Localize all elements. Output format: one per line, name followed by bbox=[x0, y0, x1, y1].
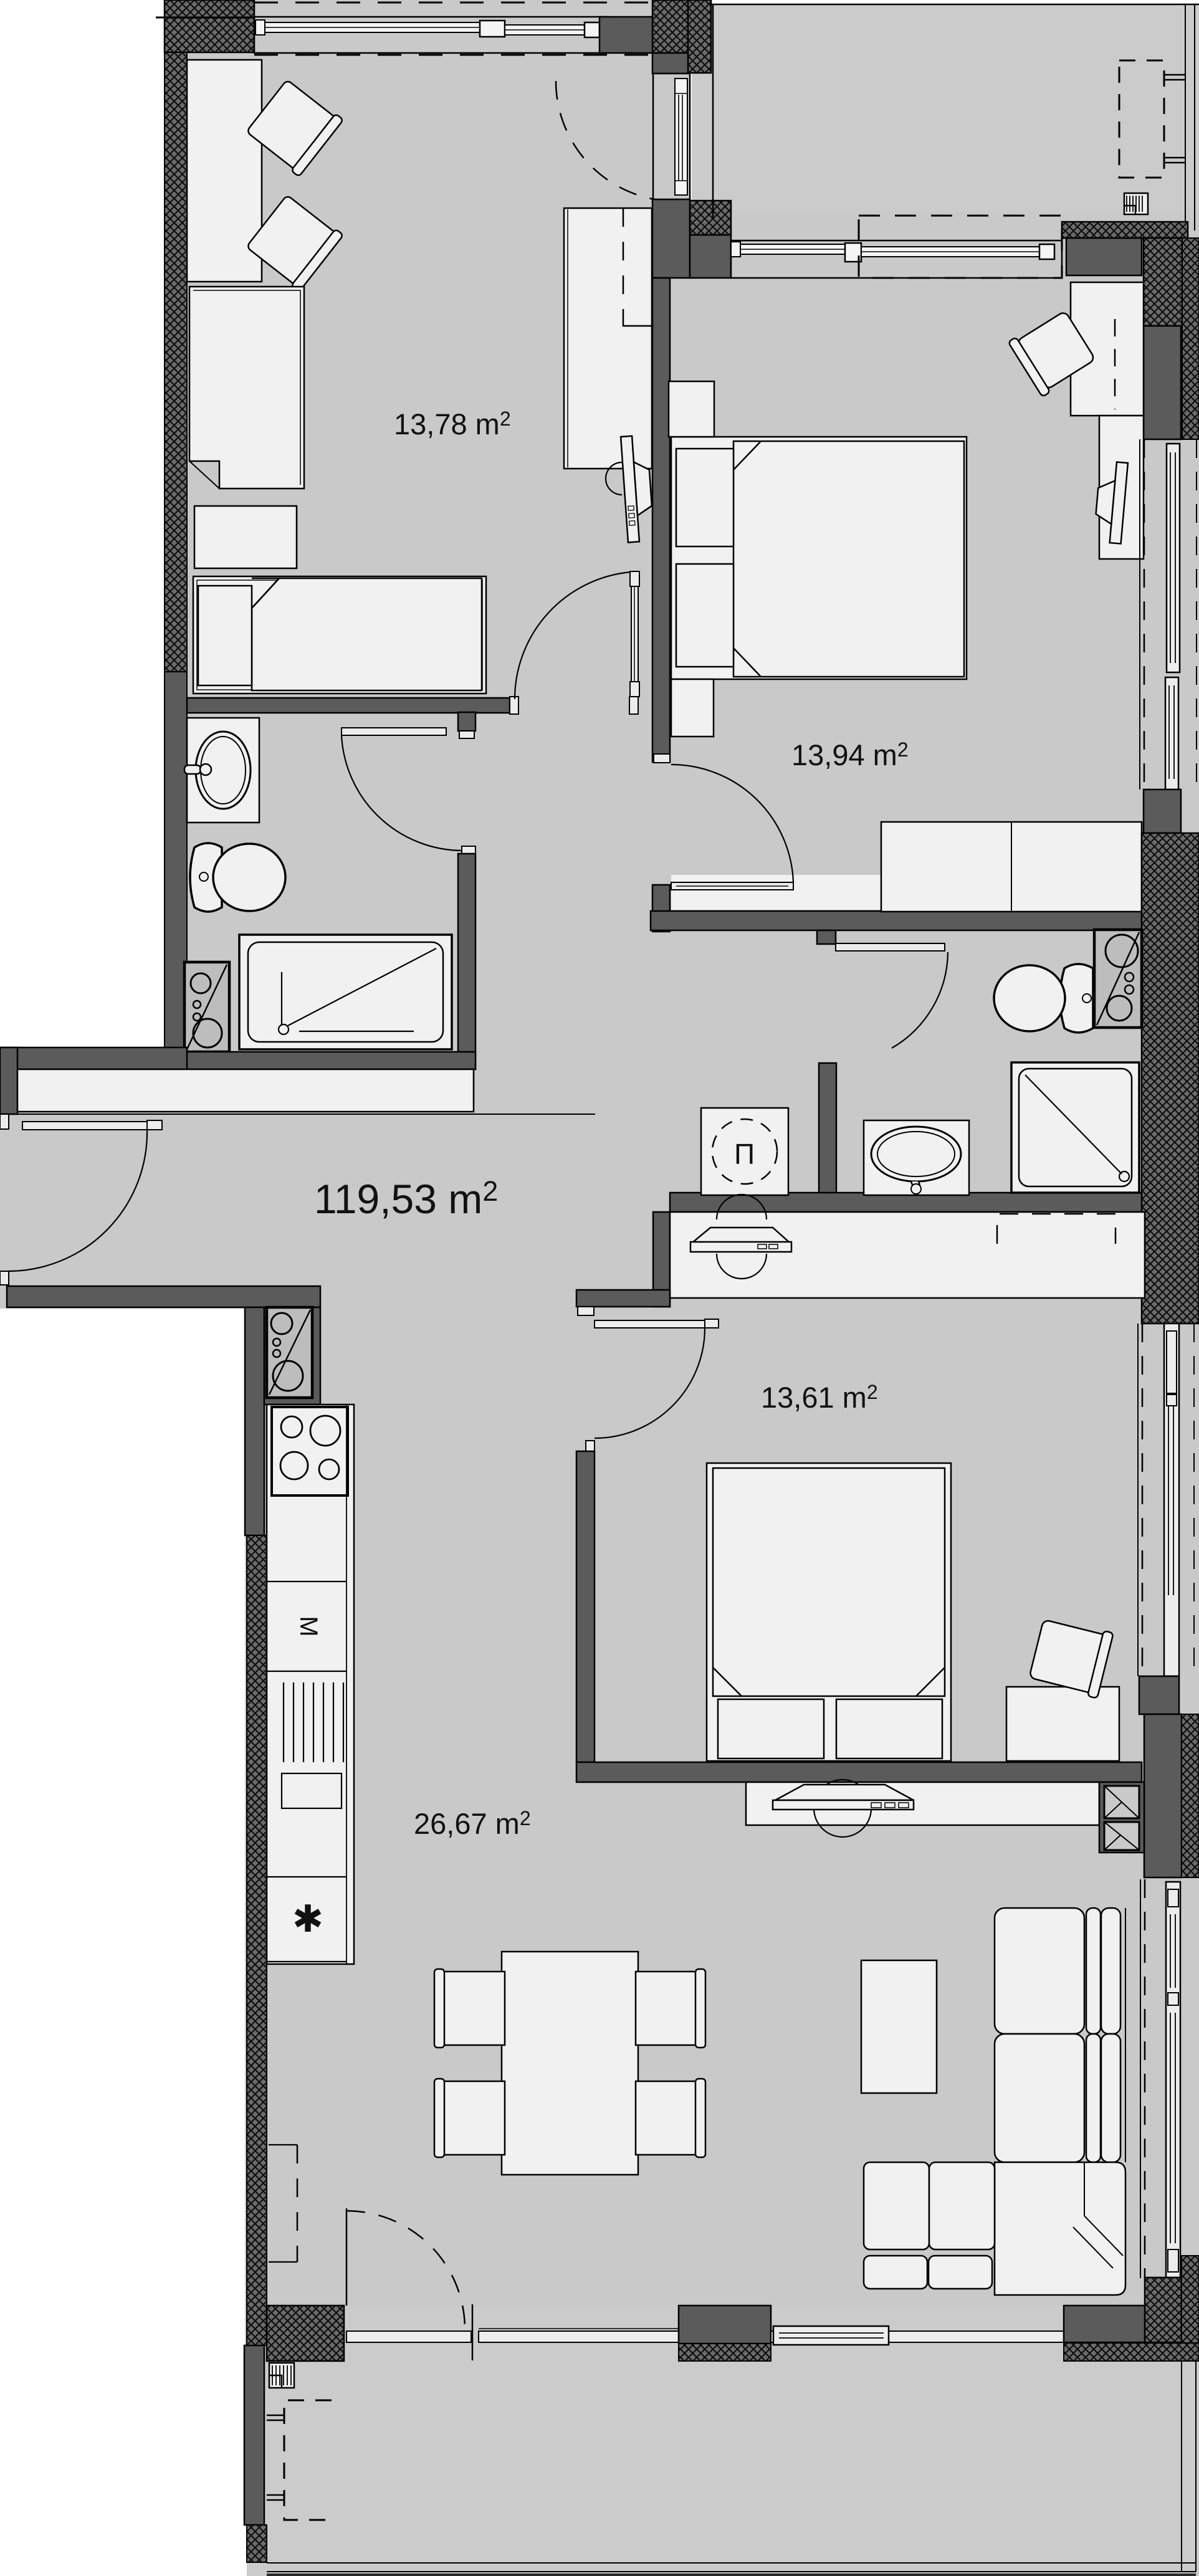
svg-text:26,67 m2: 26,67 m2 bbox=[414, 1807, 531, 1840]
svg-text:Π: Π bbox=[734, 1138, 755, 1170]
svg-text:13,61 m2: 13,61 m2 bbox=[761, 1381, 878, 1414]
svg-text:M: M bbox=[295, 1616, 322, 1636]
svg-text:13,94 m2: 13,94 m2 bbox=[791, 738, 909, 771]
svg-text:119,53 m2: 119,53 m2 bbox=[314, 1175, 498, 1222]
svg-text:13,78 m2: 13,78 m2 bbox=[394, 408, 511, 441]
svg-text:✱: ✱ bbox=[292, 1898, 323, 1940]
